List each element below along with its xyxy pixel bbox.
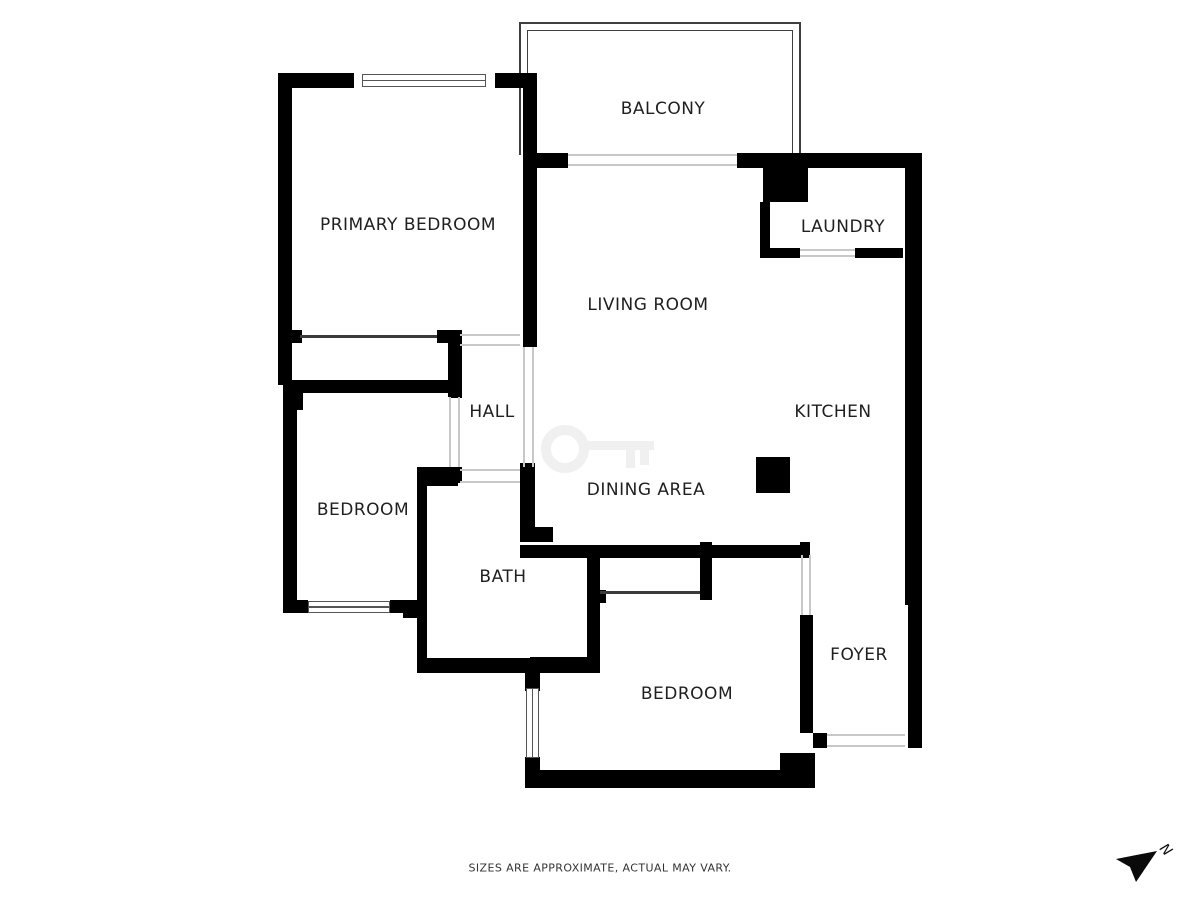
wall [780,753,815,788]
door-opening [460,481,520,483]
wall [905,155,922,605]
entry-opening [827,745,905,747]
room-label-hall: HALL [469,402,514,422]
north-arrow: N [1106,836,1178,896]
closet-door-line [600,591,700,594]
window [308,601,390,613]
wall [427,473,458,486]
wall [417,658,540,673]
wall [520,545,810,558]
wall [283,380,297,613]
door-opening [449,397,451,467]
wall [278,73,292,385]
window [526,688,539,758]
room-label-bedroom-mid: BEDROOM [317,500,409,520]
wall [537,153,568,168]
wall [813,733,827,748]
wall [587,545,600,670]
room-label-kitchen: KITCHEN [794,402,871,422]
door-opening [460,469,520,471]
door-opening [460,344,520,346]
room-label-living-room: LIVING ROOM [587,295,708,315]
wall [855,248,903,258]
entry-opening [827,734,905,736]
window [362,74,486,87]
wall [283,380,450,393]
door-opening [809,555,811,615]
door-opening [523,347,525,467]
wall [800,615,813,733]
door-opening [568,154,737,156]
wall [737,153,922,168]
balcony-railing-inner [527,30,793,155]
key-icon [538,416,663,484]
wall [800,542,810,555]
wall [520,527,553,542]
wall [760,248,800,258]
wall [763,168,808,202]
room-label-foyer: FOYER [830,645,888,665]
wall [403,603,417,618]
disclaimer-text: SIZES ARE APPROXIMATE, ACTUAL MAY VARY. [469,862,732,875]
room-label-bath: BATH [479,567,526,587]
wall [448,333,460,397]
wall [283,600,308,613]
kitchen-column [756,457,790,493]
wall [525,770,815,788]
door-opening [801,555,803,615]
room-label-balcony: BALCONY [621,99,706,119]
room-label-laundry: LAUNDRY [801,217,885,237]
closet-door-line [300,335,437,338]
wall [523,73,537,347]
door-opening [800,249,855,251]
door-opening [460,334,520,336]
wall [700,542,712,600]
door-opening [568,164,737,166]
north-label: N [1156,841,1175,860]
room-label-primary-bedroom: PRIMARY BEDROOM [320,215,496,235]
door-opening [458,397,460,467]
door-opening [800,255,855,257]
door-opening [532,347,534,467]
room-label-dining-area: DINING AREA [587,480,705,500]
floor-plan: BALCONY PRIMARY BEDROOM LAUNDRY LIVING R… [0,0,1200,900]
wall [908,605,922,748]
room-label-bedroom-bottom: BEDROOM [641,684,733,704]
wall [417,467,427,673]
